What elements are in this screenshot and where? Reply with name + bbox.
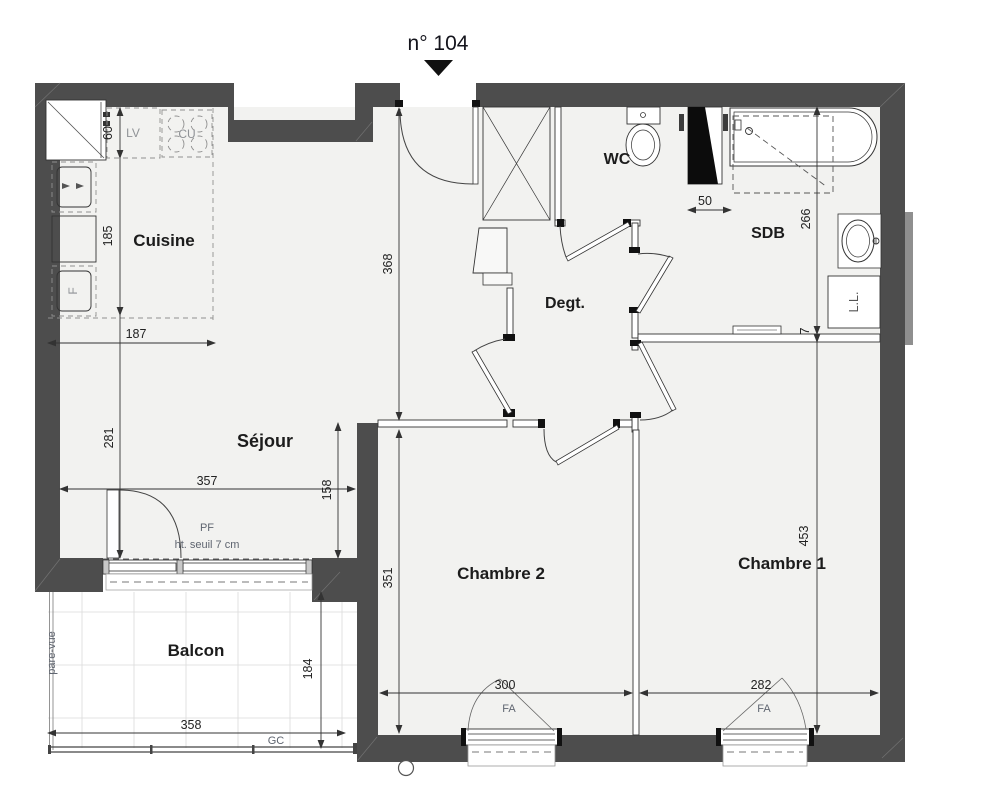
dim-281: 281 (102, 428, 116, 449)
toilet (626, 107, 660, 166)
dim-358: 358 (181, 718, 202, 732)
dim-453: 453 (797, 526, 811, 547)
room-label-cuisine: Cuisine (133, 231, 194, 250)
entrance-marker: n° 104 (408, 32, 469, 76)
note-fa-chambre2: FA (502, 703, 516, 715)
note-pare-vue: pare-vue (46, 631, 58, 674)
floorplan-svg: n° 104 LV CU F (0, 0, 988, 800)
room-label-chambre2: Chambre 2 (457, 564, 545, 583)
dim-158: 158 (320, 480, 334, 501)
room-label-sdb: SDB (751, 225, 785, 242)
note-fa-chambre1: FA (757, 703, 771, 715)
dim-368: 368 (381, 254, 395, 275)
dim-351: 351 (381, 568, 395, 589)
note-pf: PF (200, 522, 214, 534)
entry-closet (483, 107, 550, 220)
cooktop-label: CU (178, 127, 195, 141)
room-label-sejour: Séjour (237, 431, 293, 451)
room-label-chambre1: Chambre 1 (738, 554, 826, 573)
room-label-degt: Degt. (545, 295, 585, 312)
dim-185: 185 (101, 226, 115, 247)
note-gc: GC (268, 735, 285, 747)
washing-machine-label: L.L. (847, 292, 861, 313)
unit-number: n° 104 (408, 32, 469, 55)
entrance-arrow-icon (424, 60, 453, 76)
dim-266: 266 (799, 209, 813, 230)
fridge-label: F (66, 287, 80, 294)
dim-7: 7 (798, 327, 812, 334)
washing-machine: L.L. (828, 276, 880, 328)
dim-357: 357 (197, 474, 218, 488)
washbasin (838, 214, 881, 268)
dim-282: 282 (751, 678, 772, 692)
dim-184: 184 (301, 659, 315, 680)
dim-50: 50 (698, 194, 712, 208)
dim-187: 187 (126, 327, 147, 341)
drain-symbol (399, 761, 414, 776)
room-label-wc: WC (604, 151, 631, 168)
note-pf-seuil: ht. seuil 7 cm (175, 539, 240, 551)
dim-300: 300 (495, 678, 516, 692)
dim-60: 60 (101, 126, 115, 140)
floorplan-page: n° 104 LV CU F (0, 0, 988, 800)
sdb-radiator (733, 326, 781, 334)
dishwasher-label: LV (126, 126, 140, 140)
room-label-balcon: Balcon (168, 641, 225, 660)
